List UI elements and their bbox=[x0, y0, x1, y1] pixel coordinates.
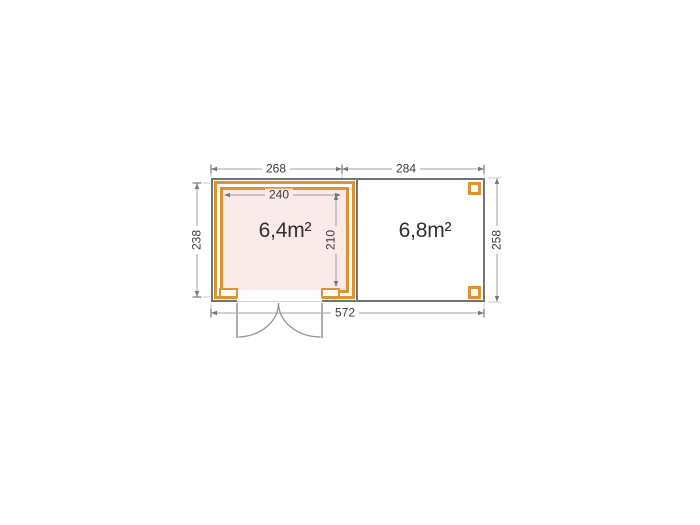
double-door-swing bbox=[237, 302, 322, 339]
room-area-label-cabin: 6,4m² bbox=[259, 219, 312, 243]
dim-label-cabin-inner-depth: 210 bbox=[325, 226, 338, 254]
dim-line-top bbox=[211, 165, 484, 179]
door-jamb-left bbox=[219, 288, 238, 298]
dim-label-canopy-width: 284 bbox=[392, 163, 420, 176]
canopy-post-top bbox=[468, 182, 481, 195]
dim-label-cabin-inner-width: 240 bbox=[265, 189, 293, 202]
dim-label-overall-depth: 258 bbox=[491, 226, 504, 254]
canopy-post-bottom bbox=[468, 286, 481, 299]
floor-plan-canvas: 268 284 240 238 210 258 572 6,4m² 6,8m² bbox=[0, 0, 700, 525]
door-opening bbox=[237, 290, 322, 304]
dim-label-overall-width: 572 bbox=[331, 307, 359, 320]
dim-label-cabin-width: 268 bbox=[262, 163, 290, 176]
dim-label-cabin-depth: 238 bbox=[191, 226, 204, 254]
door-jamb-right bbox=[321, 288, 340, 298]
room-area-label-canopy: 6,8m² bbox=[399, 219, 452, 243]
